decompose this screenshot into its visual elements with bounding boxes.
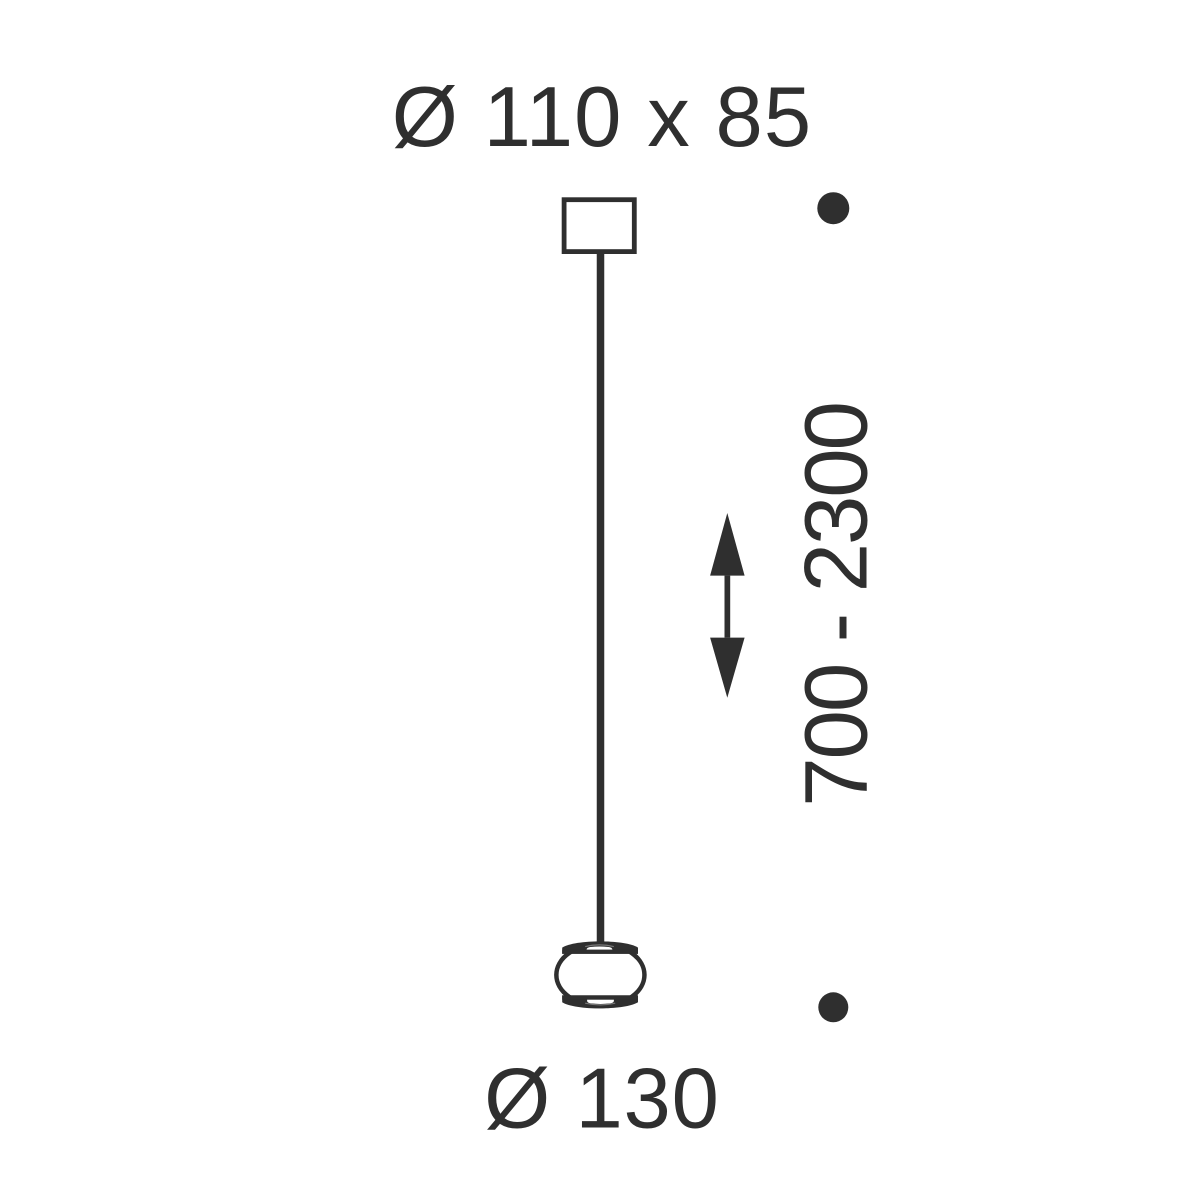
svg-text:Ø 130: Ø 130 (484, 1052, 720, 1147)
svg-text:Ø 110 x 85: Ø 110 x 85 (392, 70, 813, 165)
svg-text:700 - 2300: 700 - 2300 (786, 403, 886, 807)
